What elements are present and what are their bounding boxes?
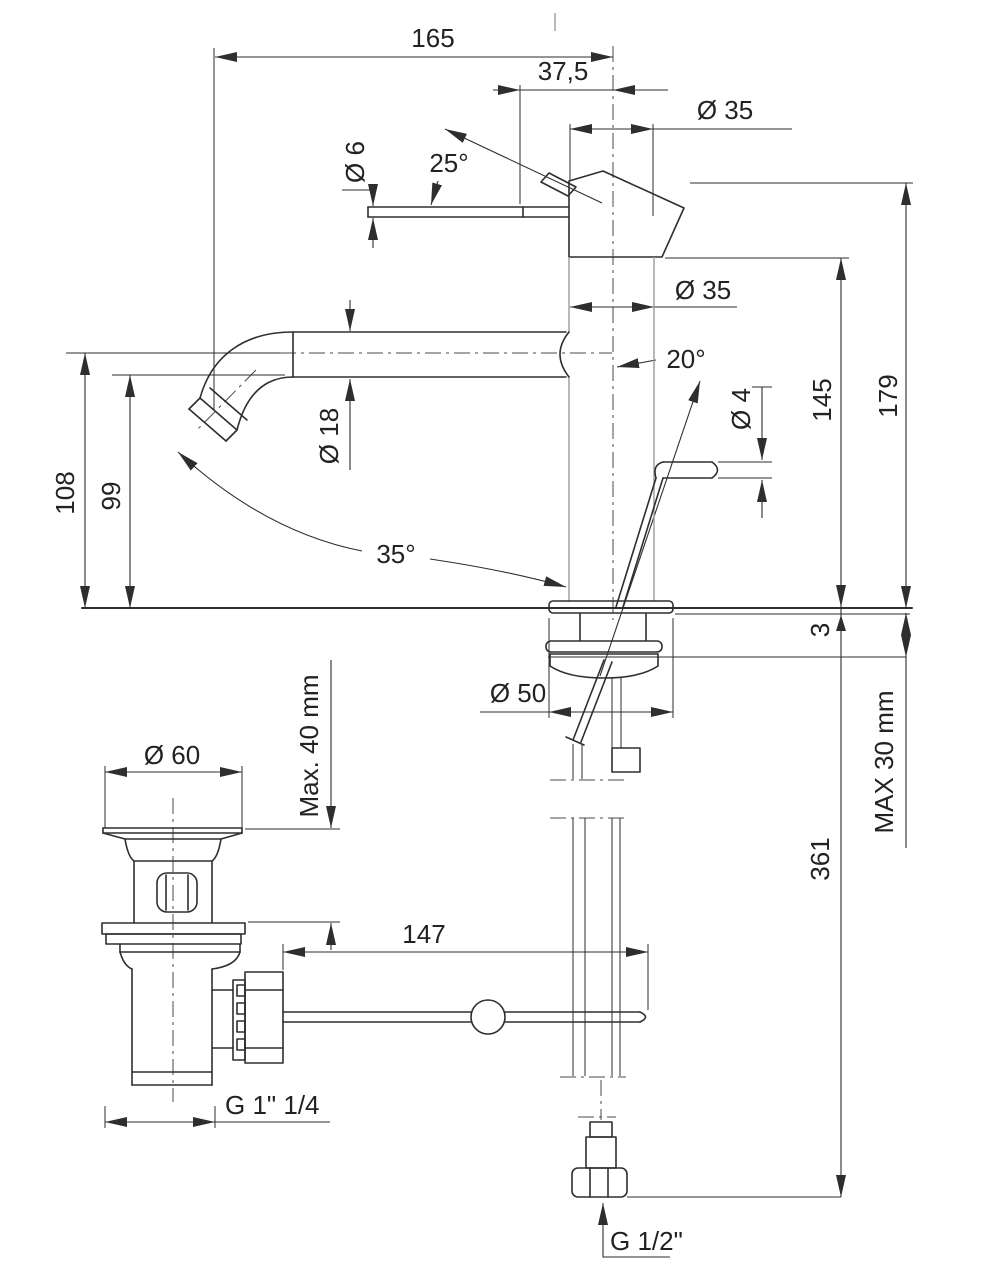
dim-rod-distance-label: 147: [402, 919, 445, 949]
drain-assembly: [102, 828, 646, 1085]
dim-top-diameter-label: Ø 35: [697, 95, 753, 125]
dim-drain-thread-label: G 1" 1/4: [225, 1090, 320, 1120]
dim-handle-offset-label: 37,5: [538, 56, 589, 86]
dim-deck-max-label: MAX 30 mm: [869, 690, 899, 833]
ball-joint: [471, 1000, 505, 1034]
dim-lever-diameter-label: Ø 6: [340, 141, 370, 183]
dim-spout-height-label: 99: [96, 482, 126, 511]
faucet-body-column: [560, 257, 654, 601]
dim-swivel-angle-label: 35°: [376, 539, 415, 569]
dim-handle-angle-label: 25°: [429, 148, 468, 178]
linkage-connector: [212, 972, 283, 1063]
dim-rod-angle-label: 20°: [666, 344, 705, 374]
handle-housing: [569, 171, 684, 257]
spout: [189, 332, 566, 441]
hose-end-nut: [572, 1122, 627, 1197]
dim-body-diameter-label: Ø 35: [675, 275, 731, 305]
extension-lines: [66, 13, 913, 1197]
dim-drain-deck-max-label: Max. 40 mm: [294, 674, 324, 817]
handle-lever: [368, 173, 576, 217]
dimension-labels: 165 37,5 Ø 35 Ø 35 Ø 6 25° Ø 18 20° Ø 4 …: [50, 23, 903, 1256]
drain-window: [157, 873, 197, 912]
dim-height-below-deck-label: 361: [805, 837, 835, 880]
mounting-hardware: [546, 613, 662, 678]
dim-plate-thickness-label: 3: [805, 623, 835, 637]
dim-supply-thread-label: G 1/2": [610, 1226, 683, 1256]
dim-drain-flange-diameter-label: Ø 60: [144, 740, 200, 770]
dim-spout-tube-diameter-label: Ø 18: [314, 408, 344, 464]
dim-rod-diameter-label: Ø 4: [726, 388, 756, 430]
dim-spout-height-max-label: 108: [50, 471, 80, 514]
pop-up-rod: [566, 462, 718, 745]
technical-drawing-page: 165 37,5 Ø 35 Ø 35 Ø 6 25° Ø 18 20° Ø 4 …: [0, 0, 986, 1288]
dim-base-diameter-label: Ø 50: [490, 678, 546, 708]
dim-height-overall-label: 179: [873, 374, 903, 417]
dim-spout-reach-label: 165: [411, 23, 454, 53]
linkage-rod: [283, 1000, 646, 1034]
dim-height-body-label: 145: [807, 378, 837, 421]
faucet-dimension-drawing: 165 37,5 Ø 35 Ø 35 Ø 6 25° Ø 18 20° Ø 4 …: [0, 0, 986, 1288]
